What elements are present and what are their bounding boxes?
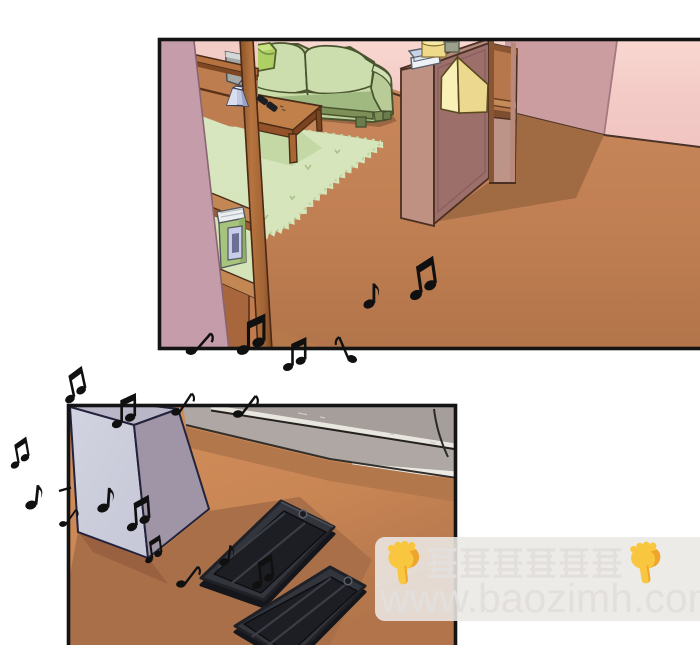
svg-text:www.baozimh.com: www.baozimh.com — [379, 575, 700, 621]
